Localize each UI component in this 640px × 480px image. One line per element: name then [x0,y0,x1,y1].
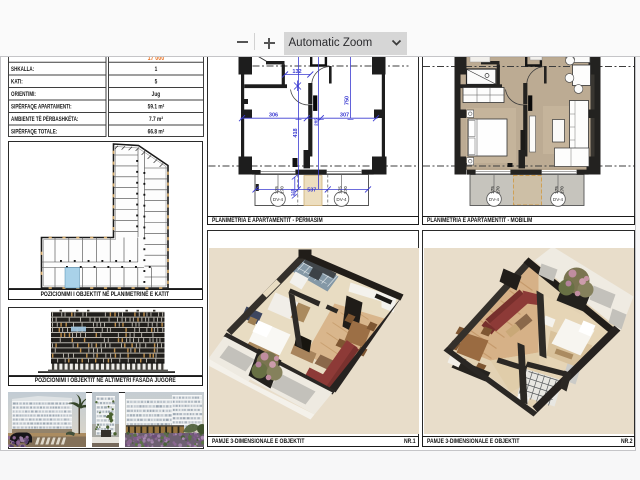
svg-text:7.7 m²: 7.7 m² [148,116,162,124]
svg-text:SIPËRFAQE APARTAMENTI:: SIPËRFAQE APARTAMENTI: [11,103,72,111]
svg-text:418: 418 [292,128,298,137]
svg-text:59.1 m²: 59.1 m² [147,103,164,111]
svg-text:307: 307 [339,113,348,119]
svg-text:537: 537 [307,187,316,193]
svg-text:306: 306 [268,113,277,119]
svg-text:66.8 m²: 66.8 m² [147,128,164,136]
svg-text:750: 750 [344,96,350,105]
svg-text:DV-4: DV-4 [272,197,283,202]
svg-text:285: 285 [313,118,318,126]
svg-text:DV-4: DV-4 [489,197,500,202]
svg-text:270: 270 [343,186,348,194]
svg-text:ORIENTIMI:: ORIENTIMI: [11,92,36,99]
svg-text:SHKALLA:: SHKALLA: [11,66,34,73]
svg-text:DV-4: DV-4 [553,197,564,202]
svg-text:1: 1 [154,67,157,74]
svg-text:175: 175 [554,186,559,194]
svg-text:KATI:: KATI: [11,79,23,86]
svg-text:270: 270 [560,186,565,194]
svg-text:DV-4: DV-4 [336,197,347,202]
svg-text:132: 132 [292,69,301,75]
svg-text:270: 270 [496,186,501,194]
svg-text:175: 175 [337,186,342,194]
svg-text:5: 5 [154,79,157,86]
svg-text:270: 270 [279,186,284,194]
svg-text:SIPËRFAQE TOTALE:: SIPËRFAQE TOTALE: [11,128,57,136]
svg-text:145: 145 [290,188,295,196]
svg-text:17 000: 17 000 [147,57,164,62]
svg-text:175: 175 [490,186,495,194]
svg-text:175: 175 [273,186,278,194]
svg-text:Jug: Jug [151,92,160,99]
svg-text:AMBIENTE TË PËRBASHKËTA:: AMBIENTE TË PËRBASHKËTA: [11,115,78,123]
